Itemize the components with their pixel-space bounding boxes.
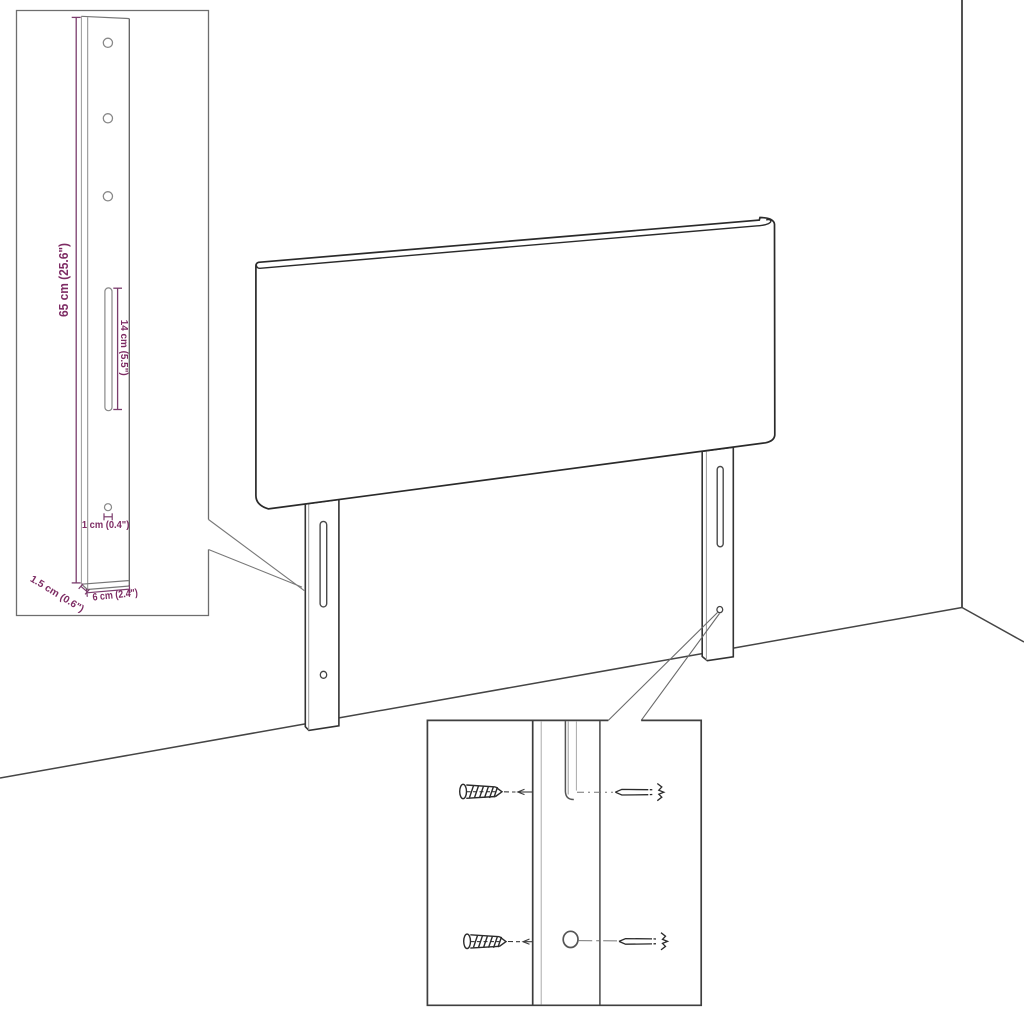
svg-text:1 cm (0.4"): 1 cm (0.4") [82, 519, 130, 531]
svg-text:65 cm (25.6"): 65 cm (25.6") [57, 243, 71, 317]
svg-text:14 cm (5.5"): 14 cm (5.5") [118, 320, 129, 376]
